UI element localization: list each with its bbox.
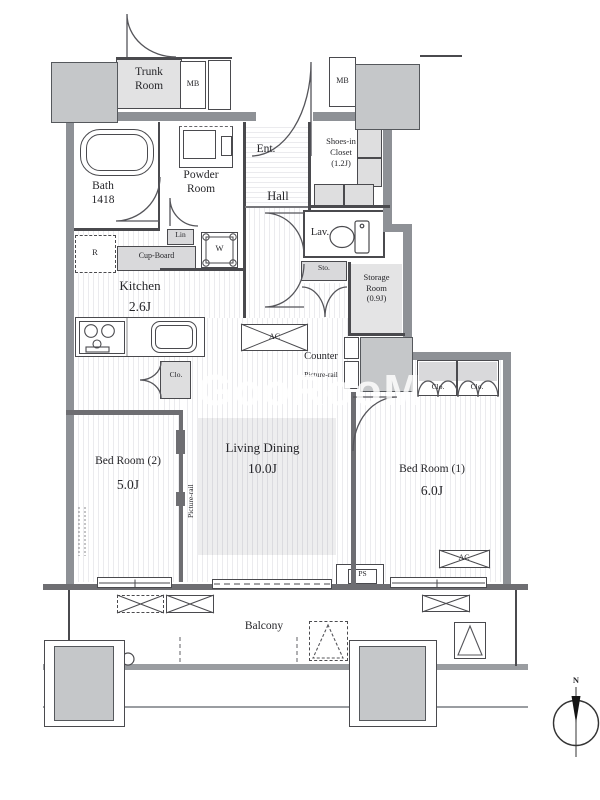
wall-segment bbox=[158, 122, 160, 230]
room-label-balcony: Balcony bbox=[232, 620, 296, 634]
stove-box bbox=[79, 321, 125, 354]
window-bedroom1 bbox=[390, 577, 487, 588]
watermark: GooRooM bbox=[198, 366, 422, 416]
ac-outdoor-dashed bbox=[117, 595, 164, 613]
ac-outdoor-box bbox=[166, 595, 214, 613]
room-label-bedroom1: Bed Room (1) bbox=[382, 463, 482, 477]
room-label-storage: Storage Room (0.9J) bbox=[350, 272, 403, 304]
room-size: 1418 bbox=[76, 194, 130, 208]
wall-segment bbox=[348, 333, 405, 336]
pillar bbox=[355, 64, 420, 130]
label-ac-bedroom1: AC bbox=[452, 553, 476, 562]
bathtub-inner bbox=[86, 134, 148, 171]
pillar bbox=[359, 646, 426, 721]
label-closet1: Clo. bbox=[424, 383, 452, 392]
living-rug bbox=[198, 418, 336, 555]
evacuation-hatch-dashed bbox=[309, 621, 348, 661]
wall-segment bbox=[160, 268, 244, 271]
bedroom1-closet-shelf bbox=[419, 362, 497, 381]
wall-segment bbox=[383, 126, 392, 228]
label-kitchen-closet: Clo. bbox=[163, 371, 189, 380]
wall-segment bbox=[411, 352, 510, 360]
pillar bbox=[54, 646, 114, 721]
label-cupboard: Cup-Board bbox=[117, 251, 196, 260]
shoe-cabinet bbox=[344, 184, 374, 207]
room-label-hall: Hall bbox=[256, 189, 300, 204]
compass-north-label: N bbox=[569, 675, 583, 685]
room-label-line: Room bbox=[116, 80, 182, 94]
room-size-kitchen: 2.6J bbox=[100, 299, 180, 315]
door-arc-powder bbox=[170, 198, 198, 226]
room-size: (1.2J) bbox=[310, 158, 372, 169]
vanity-faucet bbox=[221, 136, 232, 156]
label-linen: Lin bbox=[167, 231, 194, 240]
wall-segment bbox=[74, 228, 160, 231]
label-ps: PS bbox=[349, 570, 376, 579]
label-closet2: Clo. bbox=[463, 383, 491, 392]
evacuation-hatch-box bbox=[454, 622, 486, 659]
room-label-lavatory: Lav. bbox=[302, 227, 338, 239]
wall-segment bbox=[313, 112, 360, 121]
label-refrigerator: R bbox=[88, 247, 102, 257]
room-label-line: Room bbox=[350, 283, 403, 294]
room-label-kitchen: Kitchen bbox=[100, 278, 180, 293]
shoe-cabinet bbox=[314, 184, 344, 207]
room-label-entrance: Ent. bbox=[246, 143, 286, 157]
label-sto: Sto. bbox=[301, 264, 347, 273]
floor-plan: Trunk Room MB MB Bath 1418 Powder Room E… bbox=[0, 0, 600, 800]
wall-segment bbox=[403, 228, 412, 340]
room-label-bedroom2: Bed Room (2) bbox=[78, 455, 178, 469]
compass-icon bbox=[554, 687, 599, 757]
wall-segment bbox=[176, 430, 185, 454]
kitchen-sink-inner bbox=[155, 325, 193, 349]
wall-segment bbox=[66, 410, 180, 415]
room-size: (0.9J) bbox=[350, 293, 403, 304]
label-washer: W bbox=[212, 243, 227, 253]
window-living bbox=[212, 579, 332, 589]
room-label-line: Trunk bbox=[116, 66, 182, 80]
bedroom2-floor bbox=[74, 413, 179, 582]
window-bedroom2 bbox=[97, 577, 172, 588]
wall-segment bbox=[420, 55, 462, 57]
closet-divider bbox=[456, 360, 458, 396]
kitchen-closet-box bbox=[160, 361, 191, 399]
balcony-side-wall bbox=[515, 590, 517, 666]
wall-segment bbox=[66, 112, 74, 585]
room-size-bedroom1: 6.0J bbox=[382, 483, 482, 499]
room-label-powder: Powder Room bbox=[162, 169, 240, 196]
entrance-step-line bbox=[245, 206, 310, 208]
pipe-space-box bbox=[208, 60, 231, 110]
ac-outdoor-box bbox=[422, 595, 470, 612]
pillar bbox=[51, 62, 118, 123]
label-mb-left: MB bbox=[180, 79, 206, 88]
room-label-bath: Bath 1418 bbox=[76, 180, 130, 207]
hall-floor bbox=[245, 208, 303, 318]
room-label-line: Powder bbox=[162, 169, 240, 183]
room-label-line: Bath bbox=[76, 180, 130, 194]
room-label-trunk: Trunk Room bbox=[116, 66, 182, 93]
door-arc-trunk bbox=[127, 14, 176, 57]
room-label-line: Closet bbox=[310, 147, 372, 158]
wall-segment bbox=[310, 205, 390, 208]
room-label-line: Shoes-in bbox=[310, 136, 372, 147]
wall-segment bbox=[351, 392, 356, 584]
room-size-bedroom2: 5.0J bbox=[78, 477, 178, 493]
room-label-line: Room bbox=[162, 183, 240, 197]
label-picture-rail-vertical: Picture-rail bbox=[187, 470, 200, 532]
label-ac-living: AC bbox=[263, 332, 286, 341]
label-mb-right: MB bbox=[329, 76, 356, 85]
room-label-living: Living Dining bbox=[210, 440, 315, 455]
room-label-shoes-closet: Shoes-in Closet (1.2J) bbox=[310, 136, 372, 169]
wall-segment bbox=[116, 57, 232, 59]
wall-segment bbox=[176, 492, 185, 506]
corridor-floor bbox=[300, 283, 348, 318]
room-size-living: 10.0J bbox=[210, 461, 315, 477]
wall-segment bbox=[503, 352, 511, 585]
balcony-partition-line bbox=[180, 637, 297, 663]
room-label-line: Storage bbox=[350, 272, 403, 283]
label-counter: Counter bbox=[290, 351, 352, 363]
vanity-basin bbox=[183, 130, 216, 159]
